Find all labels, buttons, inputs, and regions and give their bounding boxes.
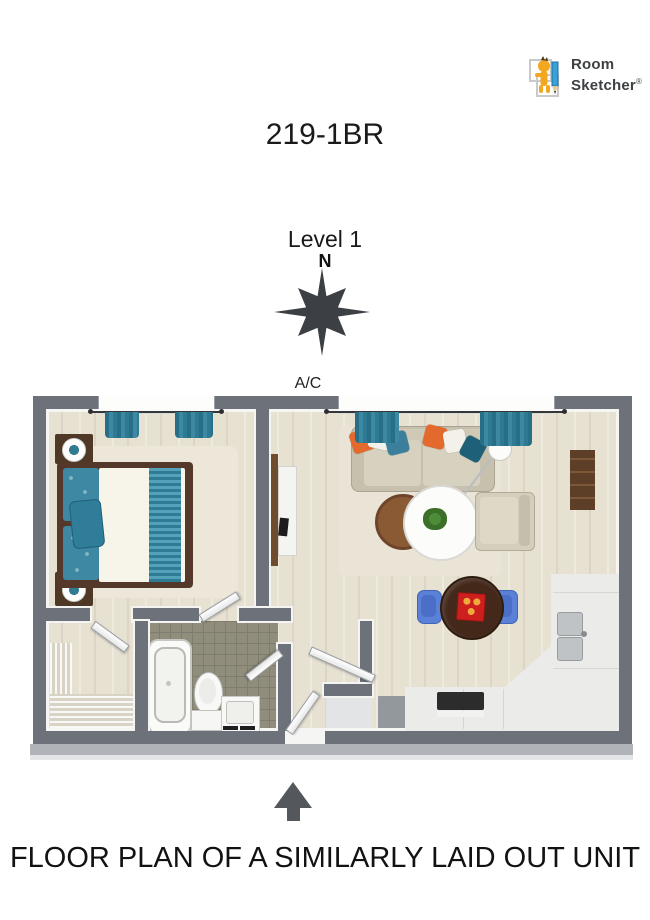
living-room-window	[338, 396, 555, 409]
compass-rose-icon	[272, 266, 372, 358]
entry-closet-floor	[326, 696, 372, 731]
counter-seam-4	[503, 689, 504, 729]
wall-bedroom-bottom-c	[239, 608, 291, 621]
kitchen-faucet	[581, 631, 587, 637]
caption: FLOOR PLAN OF A SIMILARLY LAID OUT UNIT	[0, 842, 650, 875]
bathroom-sink	[226, 701, 254, 724]
level-label: Level 1	[0, 226, 650, 253]
bedroom-window	[98, 396, 215, 409]
armchair-cushion	[480, 497, 518, 544]
living-curtain-right	[480, 412, 532, 446]
unit-title: 219-1BR	[0, 118, 650, 152]
rod-finial	[219, 409, 224, 414]
kitchen-sink-basin-1	[557, 612, 583, 636]
wall-bedroom-living-divider	[256, 409, 269, 608]
bookshelf	[570, 450, 595, 510]
logo-line2: Sketcher	[571, 77, 636, 94]
table-lamp-top	[62, 438, 86, 462]
wall-left	[33, 396, 46, 744]
wall-bedroom-bottom-b	[133, 608, 199, 621]
entrance-arrow-icon	[274, 782, 312, 808]
vanity-drawer-2	[240, 726, 255, 730]
kitchen-sink-basin-2	[557, 637, 583, 661]
logo-text: Room Sketcher®	[571, 56, 642, 94]
counter-seam-2	[553, 668, 619, 669]
floor-plan	[33, 396, 632, 744]
rod-finial	[88, 409, 93, 414]
living-curtain-left	[355, 412, 399, 443]
dining-tray	[456, 592, 486, 622]
vanity-drawer-1	[223, 726, 238, 730]
stove-control-panel	[437, 711, 484, 717]
rod-finial	[324, 409, 329, 414]
food-item-1	[463, 597, 470, 604]
wall-right	[619, 396, 632, 744]
tv-console	[278, 466, 297, 556]
dining-chair-left-seat	[421, 595, 436, 617]
logo-registered-mark: ®	[636, 77, 642, 86]
bed-accent-pillow	[69, 498, 106, 549]
toilet-tank	[191, 710, 225, 731]
wall-entry-closet-horizontal	[324, 684, 372, 696]
logo-line1: Room	[571, 56, 614, 73]
closet-shelf-bottom	[50, 694, 136, 728]
counter-seam-1	[553, 592, 619, 593]
ac-label: A/C	[258, 375, 358, 393]
stove	[437, 692, 484, 710]
bedroom-curtain-right	[175, 412, 213, 438]
wall-bedroom-bottom-a	[46, 608, 90, 621]
tv	[278, 518, 289, 537]
wall-bottom-left-segment	[33, 731, 632, 744]
bathtub-drain	[166, 681, 171, 686]
food-item-3	[467, 608, 474, 615]
food-item-2	[473, 598, 480, 605]
toilet-seat	[199, 678, 216, 704]
armchair-back	[519, 495, 530, 546]
floor-slab-edge	[30, 755, 633, 760]
rod-finial	[562, 409, 567, 414]
roomsketcher-logo: Room Sketcher®	[527, 54, 637, 100]
bed-runner	[149, 468, 181, 582]
plant	[423, 508, 447, 530]
bedroom-curtain-left	[105, 412, 139, 438]
tv-panel	[269, 454, 278, 566]
wall-closet-right	[135, 621, 148, 731]
entrance-arrow-stem	[287, 808, 300, 821]
wall-extrusion-face	[30, 744, 633, 755]
roomsketcher-figure-pencil-icon	[527, 54, 569, 98]
